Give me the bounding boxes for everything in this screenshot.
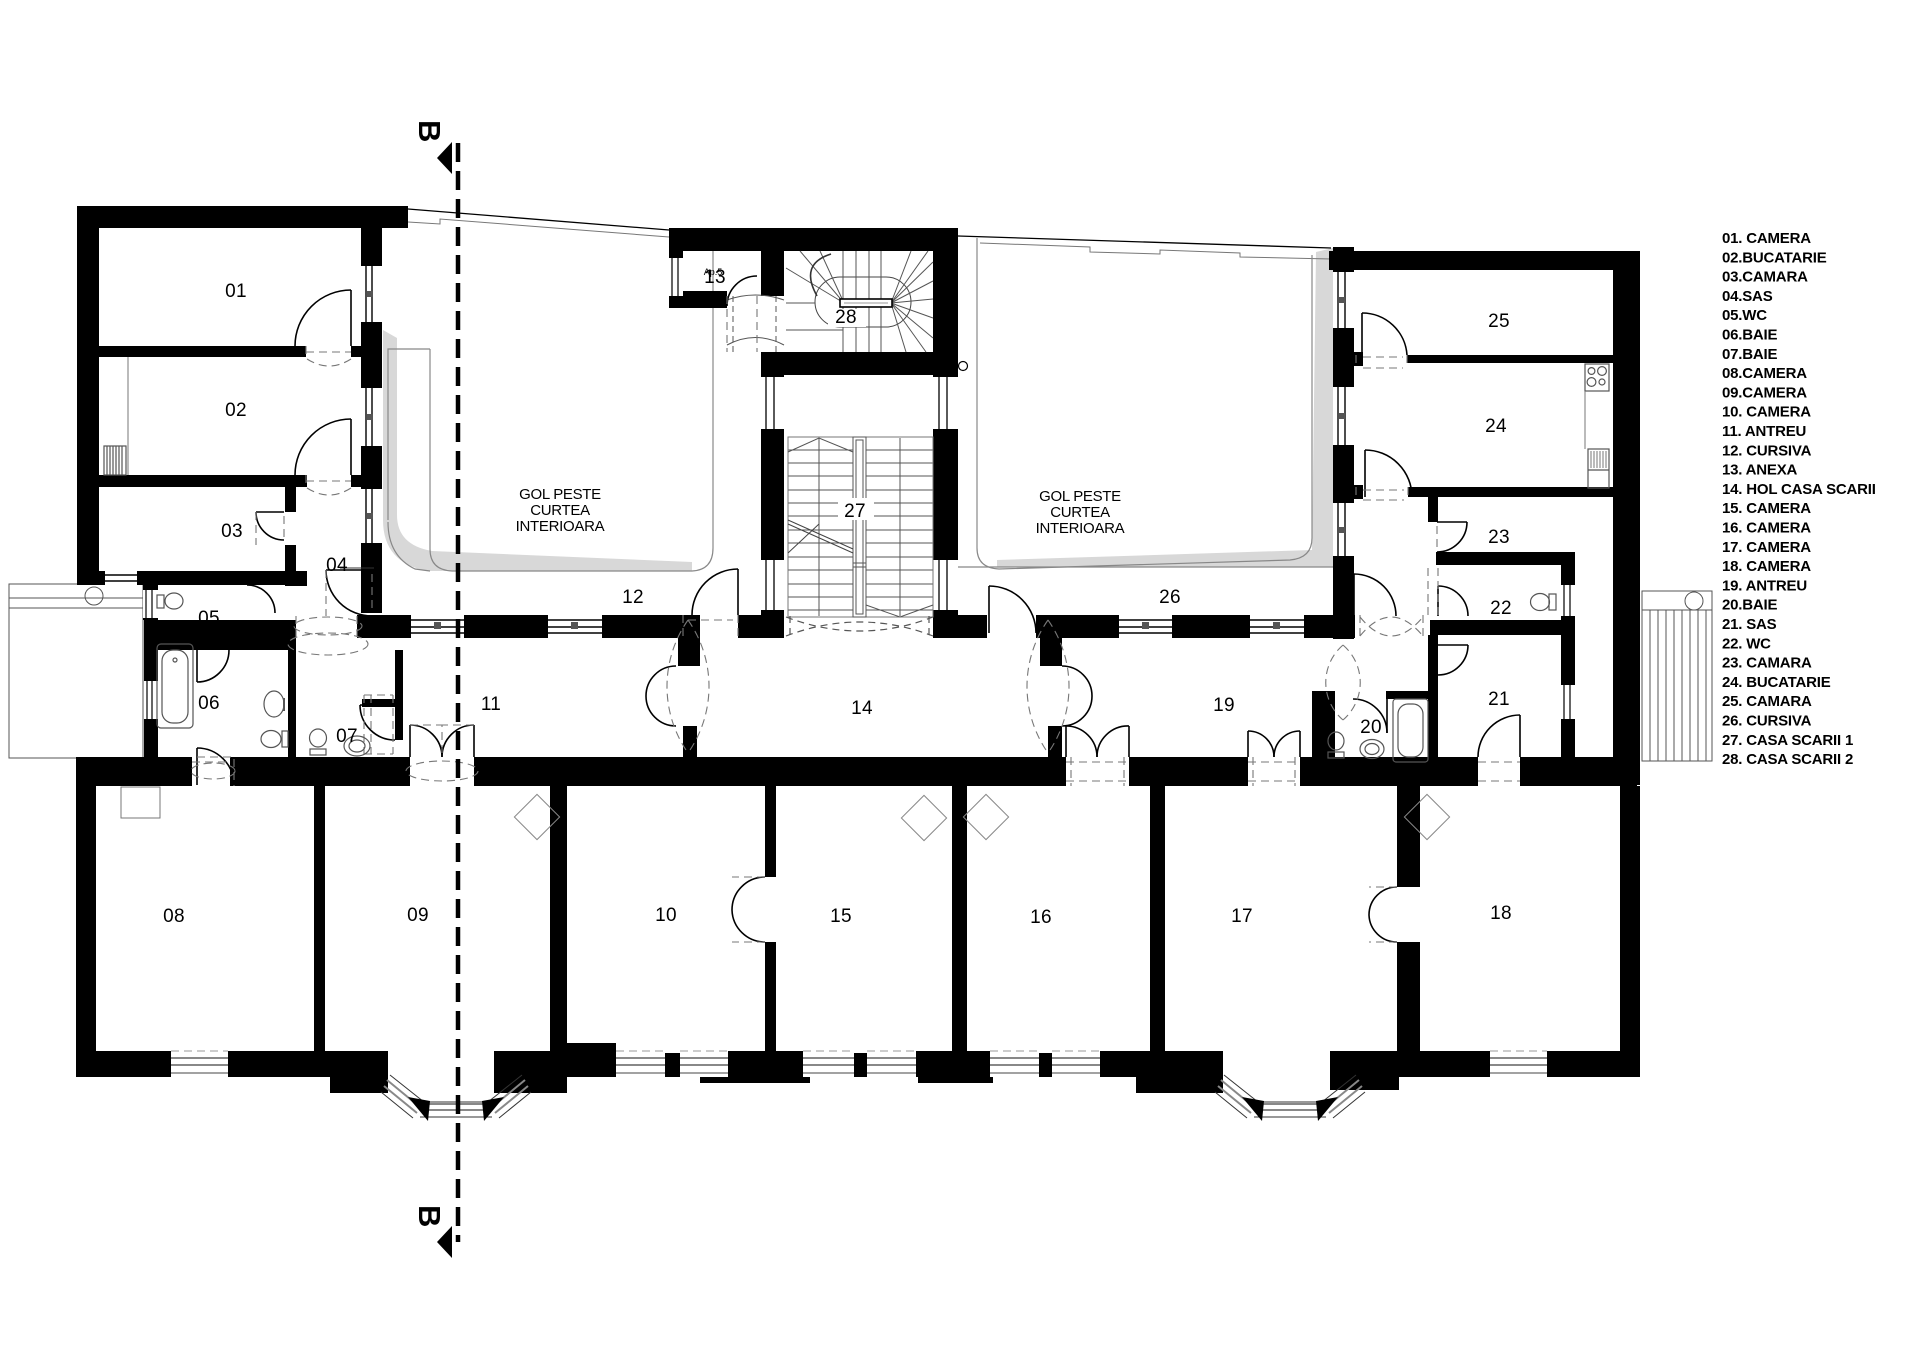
svg-text:10: 10 (655, 905, 677, 926)
svg-text:04: 04 (326, 555, 348, 576)
svg-text:20.BAIE: 20.BAIE (1722, 597, 1777, 614)
svg-text:CURTEA: CURTEA (1050, 504, 1110, 521)
svg-text:22: 22 (1490, 598, 1512, 619)
svg-text:CURTEA: CURTEA (530, 502, 590, 519)
svg-text:12: 12 (622, 587, 644, 608)
svg-text:25: 25 (1488, 311, 1510, 332)
svg-text:27. CASA SCARII 1: 27. CASA SCARII 1 (1722, 732, 1853, 749)
svg-text:03: 03 (221, 521, 243, 542)
svg-text:23: 23 (1488, 527, 1510, 548)
svg-text:17. CAMERA: 17. CAMERA (1722, 539, 1811, 556)
svg-text:04.SAS: 04.SAS (1722, 288, 1773, 305)
svg-text:21. SAS: 21. SAS (1722, 616, 1777, 633)
svg-text:GOL PESTE: GOL PESTE (1039, 488, 1121, 505)
svg-text:15: 15 (830, 906, 852, 927)
svg-text:11: 11 (481, 694, 501, 715)
svg-text:Ap.5: Ap.5 (704, 267, 723, 277)
svg-text:02: 02 (225, 400, 247, 421)
svg-text:14. HOL CASA SCARII: 14. HOL CASA SCARII (1722, 481, 1876, 498)
svg-text:03.CAMARA: 03.CAMARA (1722, 269, 1808, 286)
svg-text:09: 09 (407, 905, 429, 926)
svg-text:28. CASA SCARII 2: 28. CASA SCARII 2 (1722, 751, 1853, 768)
svg-text:07: 07 (336, 726, 358, 747)
svg-text:INTERIOARA: INTERIOARA (1036, 520, 1125, 537)
svg-text:18: 18 (1490, 903, 1512, 924)
svg-text:05.WC: 05.WC (1722, 307, 1767, 324)
svg-text:13. ANEXA: 13. ANEXA (1722, 462, 1798, 479)
svg-text:12. CURSIVA: 12. CURSIVA (1722, 442, 1812, 459)
svg-text:14: 14 (851, 698, 873, 719)
svg-text:24. BUCATARIE: 24. BUCATARIE (1722, 674, 1831, 691)
svg-text:16. CAMERA: 16. CAMERA (1722, 520, 1811, 537)
svg-text:01: 01 (225, 281, 247, 302)
svg-text:21: 21 (1488, 689, 1510, 710)
svg-text:19: 19 (1213, 695, 1235, 716)
svg-text:10. CAMERA: 10. CAMERA (1722, 404, 1811, 421)
svg-text:24: 24 (1485, 416, 1507, 437)
svg-text:08.CAMERA: 08.CAMERA (1722, 365, 1807, 382)
svg-text:INTERIOARA: INTERIOARA (516, 518, 605, 535)
svg-text:01. CAMERA: 01. CAMERA (1722, 230, 1811, 247)
svg-text:B: B (412, 1205, 447, 1227)
svg-text:26. CURSIVA: 26. CURSIVA (1722, 713, 1812, 730)
svg-text:18. CAMERA: 18. CAMERA (1722, 558, 1811, 575)
svg-text:20: 20 (1360, 717, 1382, 738)
svg-text:25. CAMARA: 25. CAMARA (1722, 693, 1812, 710)
svg-text:06.BAIE: 06.BAIE (1722, 327, 1777, 344)
svg-text:GOL PESTE: GOL PESTE (519, 486, 601, 503)
svg-text:B: B (412, 120, 447, 142)
svg-text:23. CAMARA: 23. CAMARA (1722, 655, 1812, 672)
svg-text:02.BUCATARIE: 02.BUCATARIE (1722, 249, 1827, 266)
svg-text:28: 28 (835, 307, 857, 328)
svg-text:16: 16 (1030, 907, 1052, 928)
svg-text:06: 06 (198, 693, 220, 714)
svg-text:05: 05 (198, 608, 220, 629)
svg-text:11. ANTREU: 11. ANTREU (1722, 423, 1806, 440)
svg-text:15. CAMERA: 15. CAMERA (1722, 500, 1811, 517)
svg-text:08: 08 (163, 906, 185, 927)
svg-text:09.CAMERA: 09.CAMERA (1722, 384, 1807, 401)
svg-text:27: 27 (844, 501, 866, 522)
svg-text:22. WC: 22. WC (1722, 635, 1771, 652)
svg-text:07.BAIE: 07.BAIE (1722, 346, 1777, 363)
svg-text:19. ANTREU: 19. ANTREU (1722, 577, 1807, 594)
svg-text:26: 26 (1159, 587, 1181, 608)
svg-text:17: 17 (1231, 906, 1253, 927)
